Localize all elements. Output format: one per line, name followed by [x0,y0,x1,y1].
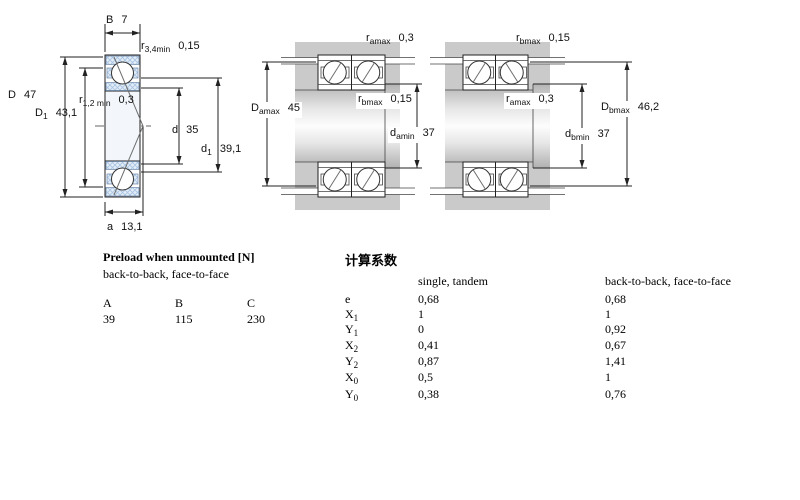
factor-symbol: X0 [345,370,358,384]
factors-row: Y2 0,87 1,41 [345,354,358,370]
factor-value-paired: 1 [605,370,611,385]
factors-row: X0 0,5 1 [345,370,358,386]
dim-label-a: a13,1 [107,221,143,237]
preload-col-header: B [175,296,183,311]
dim-label-r-amax-mid: ramax0,3 [504,93,556,109]
dim-label-D-bmax: Dbmax46,2 [599,101,661,117]
factors-col1-header: single, tandem [418,274,488,289]
factor-symbol: Y0 [345,387,358,401]
factor-value-single: 0,68 [418,292,439,307]
dim-label-D-amax: Damax45 [249,102,302,118]
factors-row: Y1 0 0,92 [345,322,358,338]
dim-label-outer-diameter-D: D47 [8,89,36,105]
factor-value-single: 0,41 [418,338,439,353]
factor-symbol: X2 [345,338,358,352]
factor-symbol: e [345,292,350,306]
factor-value-single: 0,87 [418,354,439,369]
factor-symbol: X1 [345,307,358,321]
preload-title: Preload when unmounted [N] [103,250,254,265]
dim-label-d1: d139,1 [201,143,241,159]
factor-value-single: 0,38 [418,387,439,402]
dimension-outer-diameter-D [60,57,103,197]
factors-row: Y0 0,38 0,76 [345,387,358,403]
factor-value-paired: 0,68 [605,292,626,307]
dim-label-r-bmax-mid: rbmax0,15 [356,93,414,109]
factors-title: 计算系数 [345,250,397,269]
factor-value-paired: 1,41 [605,354,626,369]
factor-value-single: 1 [418,307,424,322]
preload-table: Preload when unmounted [N] back-to-back,… [103,250,333,340]
bearing-pair-top [318,55,385,90]
factor-symbol: Y1 [345,322,358,336]
factors-row: X2 0,41 0,67 [345,338,358,354]
preload-col-header: A [103,296,112,311]
dim-label-D1: D143,1 [35,107,77,123]
bearing-ring-section-top [105,55,140,91]
preload-value: 39 [103,312,115,327]
bearing-datasheet-page: B7 r3,4min0,15 D47 D143,1 r1,2 min0,3 d3… [0,0,800,500]
factor-value-paired: 0,67 [605,338,626,353]
factor-value-paired: 0,92 [605,322,626,337]
dim-label-d-amin: damin37 [388,127,437,143]
bearing-ring-section-bottom [105,161,140,197]
factor-value-single: 0,5 [418,370,433,385]
factors-row: e 0,68 0,68 [345,292,350,308]
dim-label-r-amax-top: ramax0,3 [366,32,414,48]
factor-value-single: 0 [418,322,424,337]
paired-arrangement-a [262,42,422,210]
preload-value: 230 [247,312,265,327]
factor-symbol: Y2 [345,354,358,368]
paired-arrangement-b [430,42,632,210]
ball-bottom [112,168,134,190]
dim-label-r-bmax-top: rbmax0,15 [516,32,570,48]
factors-row: X1 1 1 [345,307,358,323]
dimension-D1 [79,68,103,187]
ball-top [112,62,134,84]
bearing-pair-top [463,55,528,90]
calculation-factors-table: 计算系数 single, tandem back-to-back, face-t… [345,250,785,410]
preload-subtitle: back-to-back, face-to-face [103,267,229,282]
factor-value-paired: 1 [605,307,611,322]
dim-label-r34min: r3,4min0,15 [141,40,200,56]
factor-value-paired: 0,76 [605,387,626,402]
dim-label-r12min: r1,2 min0,3 [79,94,134,110]
dim-label-width-B: B7 [106,14,127,30]
bearing-pair-bottom [463,162,528,197]
preload-col-header: C [247,296,255,311]
dim-label-d-bmin: dbmin37 [563,128,612,144]
bearing-pair-bottom [318,162,385,197]
preload-value: 115 [175,312,193,327]
factors-col2-header: back-to-back, face-to-face [605,274,731,289]
dim-label-bore-d: d35 [172,124,198,140]
